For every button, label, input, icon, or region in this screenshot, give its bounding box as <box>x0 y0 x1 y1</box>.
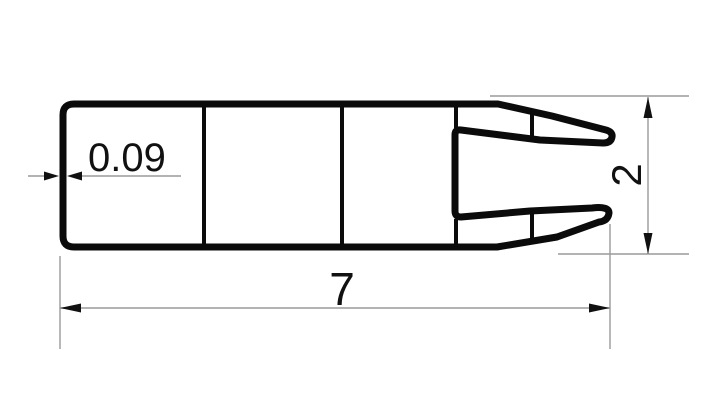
arrowhead-right-icon <box>44 172 59 181</box>
dim-wall-thickness-label: 0.09 <box>88 136 166 180</box>
dim-overall-height-label: 2 <box>603 163 650 186</box>
arrowhead-left-icon <box>60 304 81 313</box>
arrowhead-left-icon <box>67 172 82 181</box>
dim-overall-height: 2 <box>490 96 689 254</box>
arrowhead-right-icon <box>589 304 610 313</box>
drawing-canvas: 0.09 7 2 <box>0 0 720 408</box>
arrowhead-up-icon <box>644 97 653 118</box>
segment-lines <box>204 106 532 245</box>
dim-wall-thickness: 0.09 <box>28 136 181 181</box>
arrowhead-down-icon <box>644 233 653 254</box>
dim-overall-length-label: 7 <box>329 263 355 315</box>
profile-drawing: 0.09 7 2 <box>0 0 720 408</box>
